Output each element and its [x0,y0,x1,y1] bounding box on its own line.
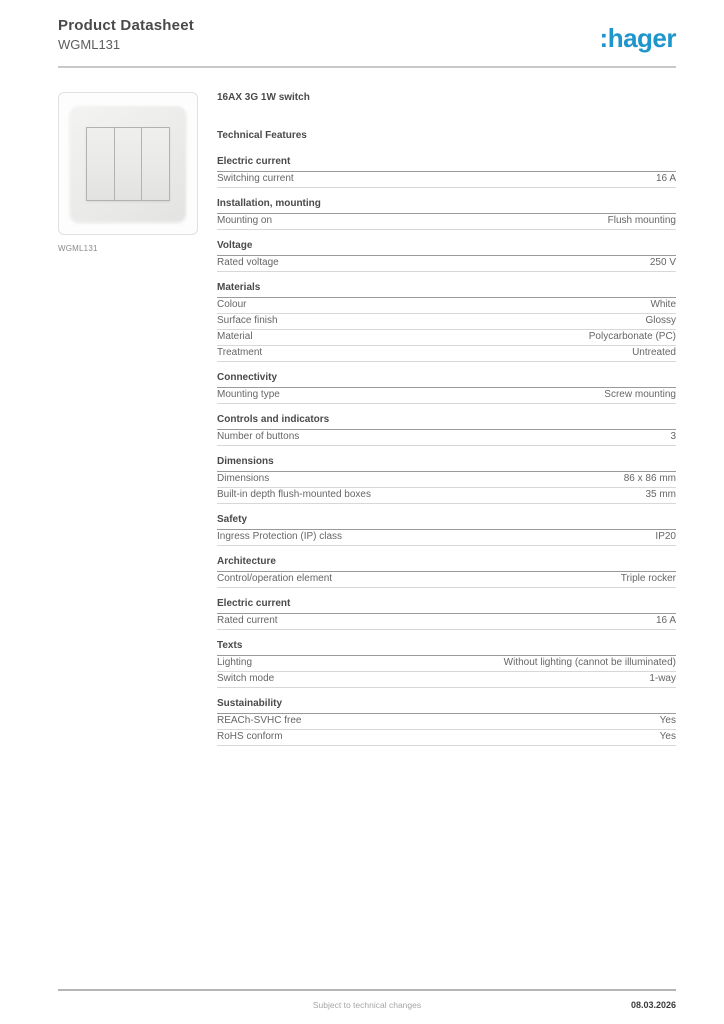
spec-section: Voltage Rated voltage 250 V [217,240,676,272]
page-title: Product Datasheet [58,17,194,35]
spec-row: Switching current 16 A [217,172,676,188]
section-rows: Control/operation element Triple rocker [217,572,676,588]
spec-column: 16AX 3G 1W switch Technical Features Ele… [217,92,676,756]
spec-row: Surface finish Glossy [217,314,676,330]
spec-row: Treatment Untreated [217,346,676,362]
section-title: Electric current [217,156,676,172]
spec-row: Number of buttons 3 [217,430,676,446]
switch-plate-graphic [70,106,186,222]
section-title: Texts [217,640,676,656]
product-reference: WGML131 [58,37,194,53]
section-title: Dimensions [217,456,676,472]
spec-row: Control/operation element Triple rocker [217,572,676,588]
hager-logo: :hager [600,23,676,54]
spec-label: Ingress Protection (IP) class [217,532,342,542]
section-rows: Mounting type Screw mounting [217,388,676,404]
spec-row: Switch mode 1-way [217,672,676,688]
spec-value: Flush mounting [608,216,676,226]
spec-value: 1-way [649,674,676,684]
spec-row: Dimensions 86 x 86 mm [217,472,676,488]
spec-row: Built-in depth flush-mounted boxes 35 mm [217,488,676,504]
spec-section: Electric current Switching current 16 A [217,156,676,188]
spec-row: Mounting on Flush mounting [217,214,676,230]
spec-label: Control/operation element [217,574,332,584]
spec-value: 86 x 86 mm [624,474,676,484]
spec-label: Material [217,332,253,342]
spec-value: Untreated [632,348,676,358]
table-heading: Technical Features [217,130,676,141]
spec-label: Rated current [217,616,278,626]
spec-value: 250 V [650,258,676,268]
image-caption: WGML131 [58,244,198,253]
spec-value: Polycarbonate (PC) [589,332,676,342]
spec-section: Installation, mounting Mounting on Flush… [217,198,676,230]
spec-section: Electric current Rated current 16 A [217,598,676,630]
spec-label: Lighting [217,658,252,668]
section-title: Architecture [217,556,676,572]
spec-value: Without lighting (cannot be illuminated) [504,658,676,668]
spec-section: Materials Colour White Surface finish Gl… [217,282,676,362]
rocker-right [142,128,169,200]
spec-label: Mounting on [217,216,272,226]
section-rows: Rated voltage 250 V [217,256,676,272]
spec-label: Number of buttons [217,432,299,442]
spec-row: Lighting Without lighting (cannot be ill… [217,656,676,672]
header: Product Datasheet WGML131 :hager [0,0,724,54]
spec-value: 16 A [656,616,676,626]
section-rows: Switching current 16 A [217,172,676,188]
triple-rocker-graphic [86,127,170,201]
spec-value: 35 mm [645,490,676,500]
spec-label: Mounting type [217,390,280,400]
footer: Subject to technical changes 08.03.2026 [58,989,676,1010]
spec-section: Sustainability REACh-SVHC free Yes RoHS … [217,698,676,746]
footer-date: 08.03.2026 [58,1000,676,1010]
title-block: Product Datasheet WGML131 [58,17,194,53]
spec-row: Rated voltage 250 V [217,256,676,272]
spec-label: REACh-SVHC free [217,716,301,726]
product-image [58,92,198,235]
spec-row: Mounting type Screw mounting [217,388,676,404]
spec-value: Yes [660,716,676,726]
section-rows: Lighting Without lighting (cannot be ill… [217,656,676,688]
section-title: Sustainability [217,698,676,714]
section-title: Materials [217,282,676,298]
spec-label: RoHS conform [217,732,283,742]
spec-value: Yes [660,732,676,742]
spec-value: White [650,300,676,310]
section-rows: Rated current 16 A [217,614,676,630]
spec-section: Texts Lighting Without lighting (cannot … [217,640,676,688]
section-title: Safety [217,514,676,530]
spec-label: Colour [217,300,246,310]
spec-label: Switching current [217,174,294,184]
spec-row: Material Polycarbonate (PC) [217,330,676,346]
spec-value: Triple rocker [621,574,676,584]
section-rows: Dimensions 86 x 86 mm Built-in depth flu… [217,472,676,504]
section-rows: REACh-SVHC free Yes RoHS conform Yes [217,714,676,746]
section-title: Voltage [217,240,676,256]
section-title: Installation, mounting [217,198,676,214]
section-rows: Mounting on Flush mounting [217,214,676,230]
section-title: Electric current [217,598,676,614]
product-image-column: WGML131 [58,92,198,756]
spec-table: Electric current Switching current 16 A … [217,156,676,746]
spec-section: Safety Ingress Protection (IP) class IP2… [217,514,676,546]
spec-label: Dimensions [217,474,269,484]
main-content: WGML131 16AX 3G 1W switch Technical Feat… [0,68,724,756]
rocker-middle [115,128,143,200]
section-rows: Number of buttons 3 [217,430,676,446]
spec-label: Built-in depth flush-mounted boxes [217,490,371,500]
spec-label: Rated voltage [217,258,279,268]
product-name: 16AX 3G 1W switch [217,92,676,103]
spec-row: REACh-SVHC free Yes [217,714,676,730]
spec-value: 16 A [656,174,676,184]
spec-row: Ingress Protection (IP) class IP20 [217,530,676,546]
rocker-left [87,128,115,200]
datasheet-page: Product Datasheet WGML131 :hager WGML131 [0,0,724,1024]
section-rows: Colour White Surface finish Glossy Mater… [217,298,676,362]
spec-value: IP20 [655,532,676,542]
spec-value: Screw mounting [604,390,676,400]
section-title: Connectivity [217,372,676,388]
section-rows: Ingress Protection (IP) class IP20 [217,530,676,546]
spec-section: Architecture Control/operation element T… [217,556,676,588]
spec-section: Controls and indicators Number of button… [217,414,676,446]
spec-row: Colour White [217,298,676,314]
spec-value: 3 [670,432,676,442]
spec-label: Surface finish [217,316,278,326]
spec-section: Connectivity Mounting type Screw mountin… [217,372,676,404]
spec-label: Treatment [217,348,262,358]
spec-row: Rated current 16 A [217,614,676,630]
spec-value: Glossy [645,316,676,326]
section-title: Controls and indicators [217,414,676,430]
spec-row: RoHS conform Yes [217,730,676,746]
spec-section: Dimensions Dimensions 86 x 86 mm Built-i… [217,456,676,504]
spec-label: Switch mode [217,674,274,684]
